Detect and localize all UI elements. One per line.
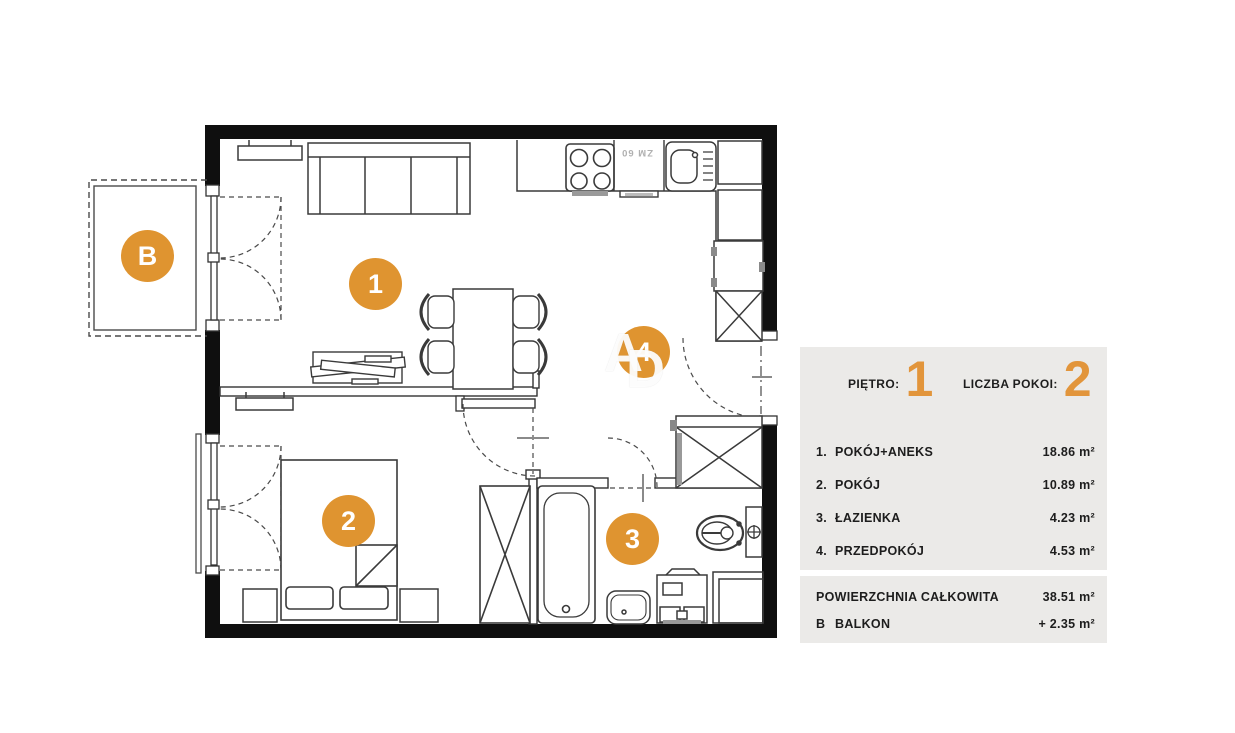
room-marker-balcony: B [121,230,174,282]
balcony-letter: B [816,617,835,631]
washbasin-icon [607,591,650,624]
floor-value: 1 [905,359,933,400]
kitchen-tall-cabinet [716,291,762,341]
room-row-3: 3. ŁAZIENKA 4.23 m² [816,501,1095,534]
totals-panel: POWIERZCHNIA CAŁKOWITA 38.51 m² B BALKON… [800,576,1107,643]
legend-panel: PIĘTRO: 1 LICZBA POKOI: 2 1. POKÓJ+ANEKS… [800,347,1107,570]
total-area-label: POWIERZCHNIA CAŁKOWITA [816,590,1043,604]
room-row-name: PRZEDPOKÓJ [835,544,1050,558]
floor-header: PIĘTRO: 1 [848,359,933,400]
room-row-name: POKÓJ+ANEKS [835,445,1043,459]
balcony-door [206,185,281,331]
dining-table [453,289,513,389]
room-count-header: LICZBA POKOI: 2 [963,359,1092,400]
fridge-icon [711,241,765,291]
room-row-4: 4. PRZEDPOKÓJ 4.53 m² [816,534,1095,567]
bathtub-icon [538,486,595,623]
room-marker-3: 3 [606,513,659,565]
room-row-1: 1. POKÓJ+ANEKS 18.86 m² [816,435,1095,468]
room-marker-1: 1 [349,258,402,310]
room-marker-2: 2 [322,495,375,547]
room-row-number: 1. [816,445,835,459]
room-row-area: 4.23 m² [1050,511,1095,525]
balcony-value: + 2.35 m² [1038,617,1095,631]
room-row-number: 2. [816,478,835,492]
living-room-radiator [238,140,302,160]
room-row-name: ŁAZIENKA [835,511,1050,525]
bedroom-window [196,434,281,575]
bedroom-wardrobe [480,486,530,623]
balcony-row: B BALKON + 2.35 m² [816,610,1095,637]
shower-tray-icon [713,572,763,623]
hallway-wardrobe [670,416,762,488]
sink-icon [666,142,716,191]
bathroom-door [608,438,657,502]
bedroom-door [456,396,549,476]
total-area-row: POWIERZCHNIA CAŁKOWITA 38.51 m² [816,583,1095,610]
floor-label: PIĘTRO: [848,377,899,391]
entrance-door [683,331,777,425]
room-row-2: 2. POKÓJ 10.89 m² [816,468,1095,501]
total-area-value: 38.51 m² [1043,590,1095,604]
washing-machine-icon [657,569,707,624]
dishwasher-label: ZM 60 [612,147,662,158]
floorplan-page: B 1 2 3 4 A D ZM 60 PIĘTRO: 1 LICZBA POK… [0,0,1235,733]
room-row-area: 10.89 m² [1043,478,1095,492]
kitchen-cabinets [718,141,762,240]
sofa [308,143,470,214]
room-list: 1. POKÓJ+ANEKS 18.86 m² 2. POKÓJ 10.89 m… [816,435,1095,567]
room-row-number: 4. [816,544,835,558]
stove-icon [566,144,614,196]
room-row-area: 4.53 m² [1050,544,1095,558]
room-marker-4: 4 [617,326,670,378]
room-row-number: 3. [816,511,835,525]
room-count-label: LICZBA POKOI: [963,377,1058,391]
room-row-name: POKÓJ [835,478,1043,492]
room-row-area: 18.86 m² [1043,445,1095,459]
room-count-value: 2 [1064,359,1092,400]
totals-list: POWIERZCHNIA CAŁKOWITA 38.51 m² B BALKON… [816,583,1095,637]
tv-stand [311,352,406,384]
balcony-label: BALKON [835,617,1038,631]
toilet-icon [697,507,762,557]
